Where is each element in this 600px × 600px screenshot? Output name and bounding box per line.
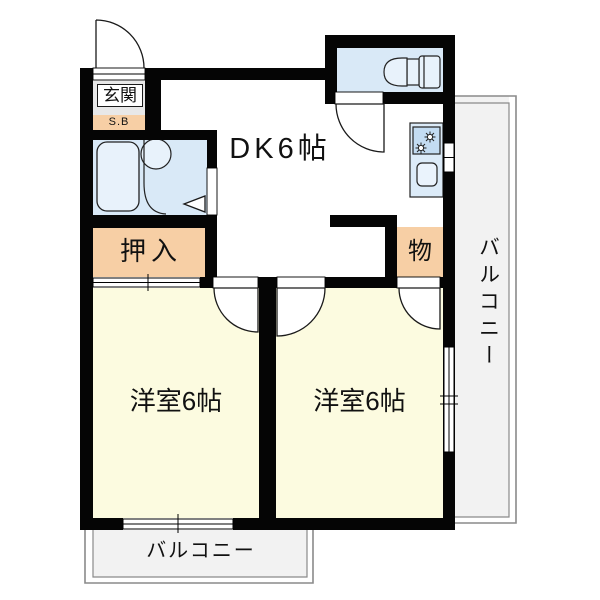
- balcony-right-label: バルコニー: [473, 218, 503, 388]
- entrance-label: 玄関: [97, 84, 143, 107]
- dining-kitchen-label: DK6帖: [205, 131, 355, 167]
- bathtub-icon: [97, 142, 139, 211]
- western-room-right-label: 洋室6帖: [276, 385, 443, 417]
- balcony-bottom-label: バルコニー: [120, 538, 282, 564]
- closet-label: 押入: [97, 235, 205, 267]
- floorplan-drawing: [0, 0, 600, 600]
- toilet-icon: [384, 56, 440, 88]
- shoe-box-label: S.B: [93, 115, 145, 130]
- sink-icon: [417, 163, 437, 186]
- entrance-door-swing: [96, 20, 144, 68]
- floorplan: 玄関 S.B DK6帖 押入 物 洋室6帖 洋室6帖 バルコニー バルコニー: [0, 0, 600, 600]
- window-kitchen: [444, 143, 454, 172]
- kitchen-counter: [410, 123, 443, 197]
- storage-label: 物: [396, 237, 444, 267]
- washbasin-icon: [141, 139, 171, 169]
- western-room-left-label: 洋室6帖: [93, 385, 259, 417]
